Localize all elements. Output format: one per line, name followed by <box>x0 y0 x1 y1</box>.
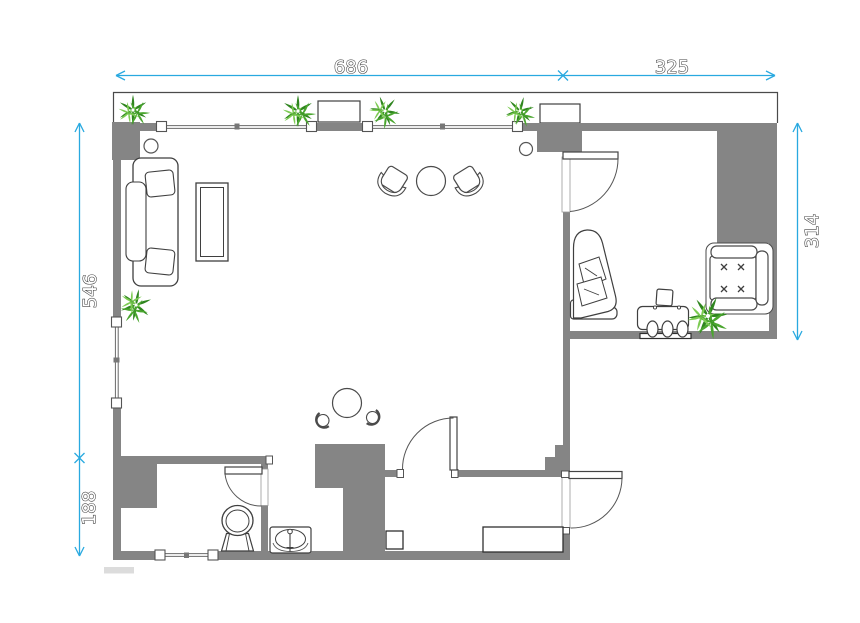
bistro-table <box>333 389 362 418</box>
wall-bathroom-right-b <box>261 505 268 551</box>
desk-chair <box>656 289 673 306</box>
toilet <box>222 506 254 552</box>
window-top-2 <box>363 122 523 132</box>
floor-plan-canvas: 686 325 546 188 314 <box>0 0 860 623</box>
wall-left-upper <box>113 160 121 318</box>
sink <box>270 527 311 553</box>
entry-mat <box>104 567 134 574</box>
stool-left <box>313 411 332 431</box>
wall-entry-step-b <box>545 457 570 471</box>
door-study <box>562 152 618 212</box>
dimension-lines <box>75 71 803 557</box>
ceiling-light <box>144 139 158 153</box>
floor-plan: 686 325 546 188 314 <box>0 0 860 623</box>
door-study-leaf <box>563 152 618 159</box>
coffee-table <box>196 183 228 261</box>
door-study-arc <box>570 159 618 212</box>
planter-box <box>318 101 360 122</box>
door-entrance-arc <box>571 478 623 528</box>
planter-box <box>540 104 580 123</box>
balcony-outline <box>114 93 778 124</box>
shoe-cabinet <box>483 527 563 552</box>
wall-entry-step-a <box>555 445 570 458</box>
door-living-hall-arc <box>402 418 453 470</box>
round-table <box>417 167 446 196</box>
door-entrance <box>562 471 623 534</box>
dim-label-314: 314 <box>802 214 823 248</box>
storage-box <box>386 531 403 549</box>
wall-middle-block-bottom <box>343 488 385 551</box>
window-bottom <box>155 550 218 561</box>
wall-corner-topleft <box>112 122 140 160</box>
window-left <box>112 317 122 408</box>
wall-middle-block-top <box>315 444 385 488</box>
wall-pier-top <box>537 131 582 152</box>
wall-block-study-corner <box>717 123 777 243</box>
dim-label-546: 546 <box>80 274 101 308</box>
wall-hall-top-right <box>458 470 563 477</box>
wall-bathroom-block <box>121 458 157 508</box>
sofa-pillow <box>145 170 175 198</box>
wall-left-lower <box>113 406 121 560</box>
wall-hall-top-left <box>385 470 398 477</box>
sofa <box>126 158 178 286</box>
dim-label-325: 325 <box>655 57 689 78</box>
wall-divider-mid <box>563 211 570 447</box>
tub-chair-left <box>373 163 412 201</box>
door-living-hall <box>397 417 458 478</box>
door-entrance-leaf <box>569 472 622 479</box>
chaise-longue <box>571 230 618 319</box>
door-bathroom-arc <box>225 474 262 506</box>
stool-right <box>363 408 382 428</box>
tufted-armchair <box>706 243 773 314</box>
wall-top-study <box>563 123 717 131</box>
dim-label-188: 188 <box>79 491 100 525</box>
sofa-pillow <box>145 248 175 276</box>
door-bathroom-leaf <box>225 467 262 474</box>
window-top-1 <box>157 122 317 132</box>
ceiling-light <box>520 143 533 156</box>
door-living-hall-leaf <box>450 417 457 470</box>
tub-chair-right <box>449 163 488 201</box>
dim-label-686: 686 <box>334 57 368 78</box>
